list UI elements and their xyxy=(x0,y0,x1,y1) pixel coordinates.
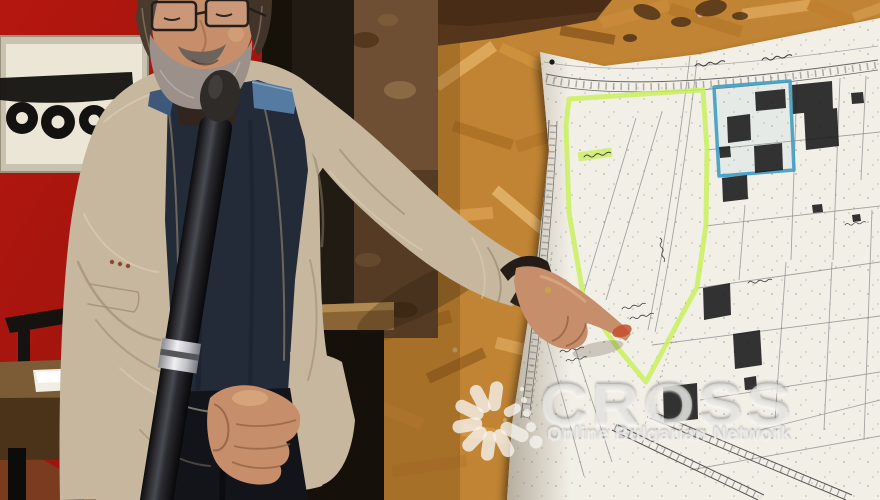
map-pin xyxy=(549,59,554,64)
photo-presenter-with-site-plan: CROSS Online Bulgarian Network xyxy=(0,0,880,500)
photo-scene xyxy=(0,0,880,500)
site-plan-map xyxy=(500,0,880,500)
watch-clasp xyxy=(545,287,551,293)
